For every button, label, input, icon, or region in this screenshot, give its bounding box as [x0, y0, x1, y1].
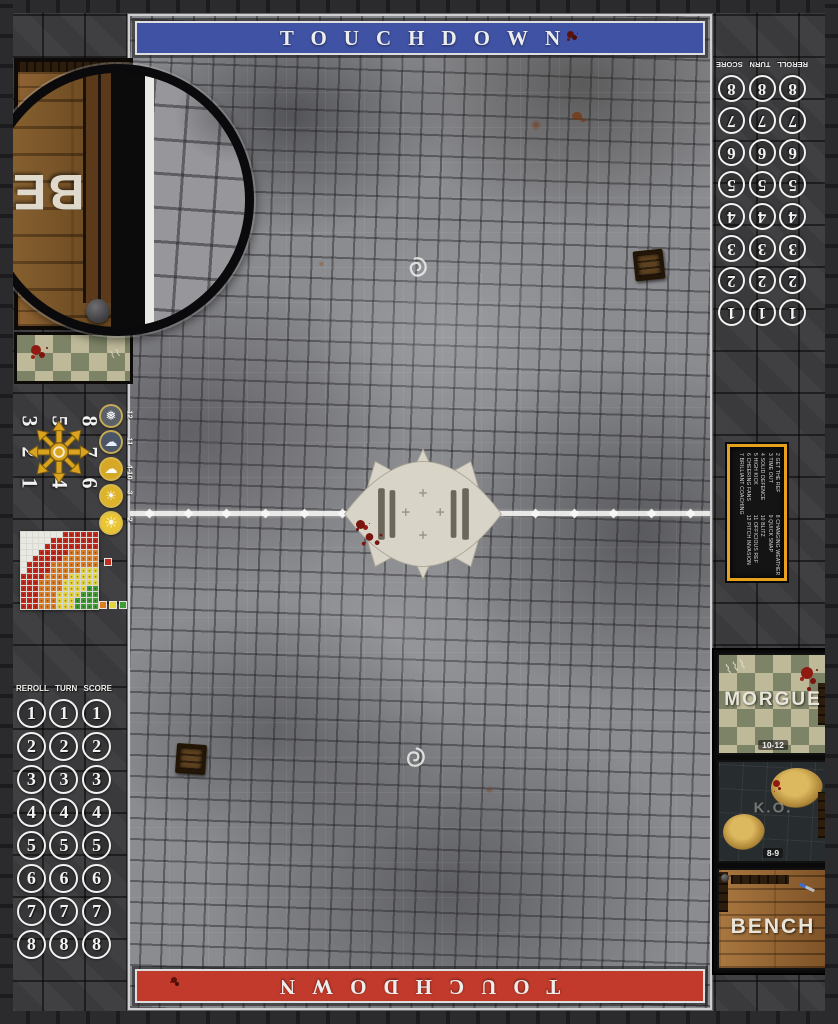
- blizzard-icon: ❅: [99, 404, 123, 428]
- zoom-detail-circle: BE + +: [0, 64, 254, 336]
- range-cell: [93, 538, 98, 543]
- range-cell: [57, 574, 62, 579]
- track-number: 6: [17, 864, 46, 893]
- range-cell: [45, 550, 50, 555]
- range-cell: [87, 604, 92, 609]
- range-cell: [87, 574, 92, 579]
- range-cell: [45, 586, 50, 591]
- midline-diamond: [260, 509, 270, 519]
- range-cell: [81, 592, 86, 597]
- track-number: 2: [718, 268, 745, 295]
- track-number: 8: [49, 930, 78, 959]
- range-cell: [39, 568, 44, 573]
- track-left-reroll-turn-score: REROLLTURNSCORE111222333444555666777888: [15, 684, 113, 961]
- range-cell: [87, 550, 92, 555]
- range-cell: [63, 556, 68, 561]
- midline-diamond: [183, 509, 193, 519]
- straw-pile: [723, 814, 765, 850]
- range-cell: [27, 598, 32, 603]
- range-cell: [69, 550, 74, 555]
- kickoff-entry: 10 BLITZ: [758, 514, 765, 575]
- range-cell: [69, 604, 74, 609]
- ko-dice-range: 8-9: [763, 848, 783, 858]
- dagger: [799, 882, 815, 891]
- magnified-sideline: [145, 73, 154, 336]
- range-cell: [57, 604, 62, 609]
- track-number: 3: [718, 236, 745, 263]
- range-cell: [63, 568, 68, 573]
- range-cell: [81, 568, 86, 573]
- range-cell: [21, 562, 26, 567]
- magnified-plank-stack: [83, 73, 111, 303]
- range-cell: [93, 556, 98, 561]
- range-cell: [21, 556, 26, 561]
- kickoff-entry: 9 QUICK SNAP: [766, 514, 773, 575]
- skull-graffiti: [400, 742, 431, 773]
- frame-left: [0, 0, 13, 1024]
- range-cell: [39, 586, 44, 591]
- range-cell: [51, 568, 56, 573]
- scatter-template: 35827146: [14, 406, 104, 498]
- track-number: 5: [49, 831, 78, 860]
- range-cell: [39, 604, 44, 609]
- blood-splatter: [356, 520, 365, 529]
- range-cell: [87, 532, 92, 537]
- partly-icon: ☁: [99, 457, 123, 481]
- midline-diamond: [531, 509, 541, 519]
- track-number: 2: [749, 268, 776, 295]
- range-cell: [51, 532, 56, 537]
- range-legend-long-bomb: [104, 558, 112, 566]
- range-cell: [57, 556, 62, 561]
- track-number: 6: [718, 140, 745, 167]
- range-cell: [63, 574, 68, 579]
- range-cell: [33, 592, 38, 597]
- blood-splatter: [31, 345, 41, 355]
- range-cell: [27, 574, 32, 579]
- kickoff-entry: 7 BRILLIANT COACHING: [737, 453, 744, 515]
- range-cell: [63, 544, 68, 549]
- range-cell: [69, 544, 74, 549]
- skeleton-bones: ⌇⌇⌇: [723, 656, 749, 679]
- range-cell: [57, 532, 62, 537]
- weather-row: ☀2: [99, 510, 139, 535]
- range-cell: [87, 544, 92, 549]
- track-number: 8: [718, 76, 745, 103]
- range-cell: [39, 562, 44, 567]
- range-cell: [45, 574, 50, 579]
- range-cell: [57, 586, 62, 591]
- range-cell: [69, 538, 74, 543]
- trapdoor: [633, 249, 666, 282]
- range-cell: [75, 586, 80, 591]
- skull-graffiti: [401, 251, 433, 283]
- midline-diamond: [145, 509, 155, 519]
- weather-row: ☁11: [99, 430, 139, 455]
- range-cell: [57, 544, 62, 549]
- range-cell: [51, 538, 56, 543]
- center-spiked-ball-emblem: [337, 446, 509, 582]
- range-cell: [33, 538, 38, 543]
- range-cell: [51, 556, 56, 561]
- weather-row: ☁4-10: [99, 457, 139, 482]
- range-cell: [93, 532, 98, 537]
- range-cell: [63, 562, 68, 567]
- kickoff-entry: 2 GET THE REF: [773, 453, 780, 515]
- range-cell: [93, 568, 98, 573]
- rust-stain: [572, 112, 582, 120]
- blood-bowl-game-mat: TOUCHDOWN TOUCHDOWN: [0, 0, 838, 1024]
- scatter-arrow-star: [28, 421, 90, 483]
- kickoff-entry: 8 CHANGING WEATHER: [773, 514, 780, 575]
- track-number: 1: [17, 699, 46, 728]
- frame-top: [0, 0, 838, 13]
- track-number: 7: [49, 897, 78, 926]
- track-header-word: SCORE: [84, 684, 112, 693]
- track-number: 3: [82, 765, 111, 794]
- track-number: 2: [82, 732, 111, 761]
- range-cell: [57, 550, 62, 555]
- skeleton-bones: ⌇⌇: [109, 347, 124, 361]
- range-cell: [75, 574, 80, 579]
- range-cell: [39, 574, 44, 579]
- range-cell: [51, 580, 56, 585]
- weather-dice-label: 3: [126, 491, 135, 501]
- range-cell: [21, 592, 26, 597]
- range-cell: [21, 544, 26, 549]
- stone-bolt: [721, 874, 729, 882]
- track-number: 4: [718, 204, 745, 231]
- midline-diamond: [647, 509, 657, 519]
- range-legend-swatch: [109, 601, 117, 609]
- trapdoor: [175, 743, 207, 775]
- track-right-reroll-turn-score: REROLLTURNSCORE111222333444555666777888: [716, 60, 808, 329]
- range-cell: [75, 598, 80, 603]
- range-cell: [75, 550, 80, 555]
- dugout-left-morgue-strip: ⌇⌇: [14, 332, 133, 384]
- track-number: 5: [779, 172, 806, 199]
- range-cell: [21, 532, 26, 537]
- range-cell: [57, 592, 62, 597]
- blood-splatter: [171, 977, 177, 983]
- morgue-panel: ⌇⌇⌇ MORGUE 10-12: [717, 653, 829, 755]
- range-cell: [45, 544, 50, 549]
- range-cell: [81, 586, 86, 591]
- range-cell: [21, 568, 26, 573]
- sunny-icon: ☀: [99, 484, 123, 508]
- range-cell: [33, 580, 38, 585]
- range-cell: [57, 598, 62, 603]
- touchdown-banner-top-label: TOUCHDOWN: [263, 26, 577, 51]
- range-cell: [51, 586, 56, 591]
- range-cell: [81, 562, 86, 567]
- track-number: 5: [749, 172, 776, 199]
- range-cell: [33, 598, 38, 603]
- range-cell: [27, 568, 32, 573]
- frame-right: [825, 0, 838, 1024]
- range-cell: [39, 538, 44, 543]
- track-number: 4: [49, 798, 78, 827]
- track-number: 7: [718, 108, 745, 135]
- range-cell: [27, 586, 32, 591]
- range-cell: [39, 580, 44, 585]
- weather-table: ❅12☁11☁4-10☀3☀2: [99, 403, 139, 535]
- track-number: 2: [779, 268, 806, 295]
- track-number: 4: [749, 204, 776, 231]
- range-cell: [27, 580, 32, 585]
- track-number: 8: [749, 76, 776, 103]
- range-legend-bands: [99, 601, 127, 609]
- touchdown-banner-top: TOUCHDOWN: [135, 21, 705, 55]
- range-cell: [33, 550, 38, 555]
- magnified-round-stone: [86, 299, 110, 323]
- range-cell: [45, 598, 50, 603]
- weather-row: ❅12: [99, 403, 139, 428]
- kickoff-entry: 5 HIGH KICK: [751, 453, 758, 515]
- range-cell: [81, 550, 86, 555]
- range-cell: [93, 604, 98, 609]
- track-number: 7: [82, 897, 111, 926]
- range-cell: [27, 544, 32, 549]
- range-cell: [33, 586, 38, 591]
- range-cell: [21, 586, 26, 591]
- kickoff-entry: 4 SOLID DEFENCE: [758, 453, 765, 515]
- range-cell: [63, 598, 68, 603]
- track-number: 3: [49, 765, 78, 794]
- track-number: 6: [82, 864, 111, 893]
- range-cell: [27, 532, 32, 537]
- track-header-word: REROLL: [16, 684, 49, 693]
- range-cell: [81, 580, 86, 585]
- track-number: 7: [779, 108, 806, 135]
- bench-label: BENCH: [731, 915, 816, 939]
- range-cell: [39, 592, 44, 597]
- midline-diamond: [686, 509, 696, 519]
- range-cell: [75, 592, 80, 597]
- range-cell: [39, 532, 44, 537]
- range-cell: [93, 586, 98, 591]
- track-header-word: TURN: [750, 60, 771, 69]
- magnified-cobblestones: + +: [154, 73, 254, 336]
- range-cell: [63, 604, 68, 609]
- track-number-grid: 111222333444555666777888: [15, 697, 113, 961]
- range-cell: [27, 538, 32, 543]
- range-cell: [27, 592, 32, 597]
- range-cell: [33, 544, 38, 549]
- track-number: 3: [17, 765, 46, 794]
- range-cell: [51, 574, 56, 579]
- range-cell: [21, 550, 26, 555]
- track-number: 8: [82, 930, 111, 959]
- touchdown-banner-bottom: TOUCHDOWN: [135, 969, 705, 1003]
- range-cell: [87, 556, 92, 561]
- track-header-word: REROLL: [777, 60, 808, 69]
- track-number: 2: [17, 732, 46, 761]
- kickoff-entry: 6 CHEERING FANS: [744, 453, 751, 515]
- track-header: REROLLTURNSCORE: [716, 60, 808, 69]
- range-legend-swatch: [119, 601, 127, 609]
- range-cell: [39, 544, 44, 549]
- morgue-dice-range: 10-12: [758, 740, 788, 750]
- track-number-grid: 111222333444555666777888: [716, 73, 808, 329]
- dugout-right: ⌇⌇⌇ MORGUE 10-12 K.O. 8-9 BENCH: [712, 648, 834, 975]
- range-cell: [27, 550, 32, 555]
- blood-splatter: [801, 667, 813, 679]
- track-number: 6: [749, 140, 776, 167]
- ko-label: K.O.: [754, 799, 793, 816]
- range-cell: [27, 556, 32, 561]
- rain-icon: ☁: [99, 430, 123, 454]
- range-cell: [69, 568, 74, 573]
- track-number: 6: [779, 140, 806, 167]
- range-cell: [93, 550, 98, 555]
- range-cell: [27, 604, 32, 609]
- range-cell: [57, 538, 62, 543]
- range-cell: [39, 556, 44, 561]
- magnified-bench-wood: BE: [0, 73, 111, 336]
- track-number: 1: [718, 300, 745, 327]
- range-cell: [33, 532, 38, 537]
- track-number: 4: [82, 798, 111, 827]
- range-cell: [69, 592, 74, 597]
- morgue-label: MORGUE: [724, 689, 822, 711]
- range-cell: [45, 532, 50, 537]
- range-cell: [87, 568, 92, 573]
- track-number: 6: [49, 864, 78, 893]
- track-header: REROLLTURNSCORE: [15, 684, 113, 693]
- range-cell: [69, 580, 74, 585]
- track-number: 1: [779, 300, 806, 327]
- bench-panel: BENCH: [717, 868, 829, 970]
- track-number: 7: [749, 108, 776, 135]
- range-cell: [93, 574, 98, 579]
- track-header-word: TURN: [55, 684, 77, 693]
- kickoff-entry: 12 PITCH INVASION: [744, 514, 751, 575]
- range-cell: [93, 580, 98, 585]
- range-cell: [45, 568, 50, 573]
- track-number: 3: [779, 236, 806, 263]
- range-cell: [81, 544, 86, 549]
- range-cell: [45, 538, 50, 543]
- wood-beam: [731, 875, 789, 884]
- range-cell: [21, 574, 26, 579]
- weather-dice-label: 12: [126, 411, 135, 421]
- kickoff-entries: 2 GET THE REF3 TIME OUT4 SOLID DEFENCE5 …: [733, 451, 781, 575]
- range-cell: [93, 544, 98, 549]
- range-cell: [51, 598, 56, 603]
- sweltering-icon: ☀: [99, 511, 123, 535]
- range-cell: [75, 556, 80, 561]
- range-legend-swatch: [99, 601, 107, 609]
- range-cell: [87, 586, 92, 591]
- range-cell: [51, 544, 56, 549]
- range-cell: [63, 586, 68, 591]
- track-number: 7: [17, 897, 46, 926]
- range-cell: [69, 532, 74, 537]
- track-number: 2: [49, 732, 78, 761]
- range-cell: [87, 592, 92, 597]
- grid-crosshair: +: [236, 145, 245, 162]
- range-cell: [63, 550, 68, 555]
- track-number: 4: [779, 204, 806, 231]
- range-cell: [51, 562, 56, 567]
- range-cell: [21, 538, 26, 543]
- range-cell: [45, 592, 50, 597]
- track-number: 1: [749, 300, 776, 327]
- track-number: 5: [82, 831, 111, 860]
- weather-dice-label: 2: [126, 518, 135, 528]
- range-cell: [21, 580, 26, 585]
- range-cell: [81, 598, 86, 603]
- range-cell: [45, 556, 50, 561]
- magnified-bench-letters: BE: [11, 163, 84, 221]
- range-cell: [39, 550, 44, 555]
- range-cell: [69, 562, 74, 567]
- magnified-dugout-gap: [111, 73, 145, 336]
- pass-range-ruler: [20, 531, 99, 610]
- range-cell: [33, 556, 38, 561]
- range-cell: [21, 604, 26, 609]
- range-cell: [93, 598, 98, 603]
- range-cell: [69, 598, 74, 603]
- range-cell: [75, 562, 80, 567]
- range-cell: [87, 598, 92, 603]
- track-number: 1: [49, 699, 78, 728]
- range-cell: [75, 544, 80, 549]
- range-cell: [75, 580, 80, 585]
- range-cell: [75, 538, 80, 543]
- track-number: 8: [779, 76, 806, 103]
- range-cell: [21, 598, 26, 603]
- track-number: 8: [17, 930, 46, 959]
- range-cell: [87, 562, 92, 567]
- range-cell: [81, 532, 86, 537]
- range-cell: [51, 592, 56, 597]
- range-cell: [33, 562, 38, 567]
- range-cell: [81, 556, 86, 561]
- kickoff-entry: 3 TIME OUT: [766, 453, 773, 515]
- range-cell: [75, 568, 80, 573]
- track-number: 3: [749, 236, 776, 263]
- midline-diamond: [570, 509, 580, 519]
- midline-diamond: [222, 509, 232, 519]
- track-number: 4: [17, 798, 46, 827]
- range-cell: [33, 574, 38, 579]
- frame-bottom: [0, 1011, 838, 1024]
- range-cell: [33, 604, 38, 609]
- range-cell: [93, 562, 98, 567]
- range-cell: [75, 532, 80, 537]
- track-number: 5: [718, 172, 745, 199]
- range-cell: [69, 556, 74, 561]
- weather-dice-label: 11: [126, 437, 135, 447]
- range-cell: [51, 550, 56, 555]
- range-cell: [81, 574, 86, 579]
- kickoff-event-table: 2 GET THE REF3 TIME OUT4 SOLID DEFENCE5 …: [727, 444, 787, 581]
- touchdown-banner-bottom-label: TOUCHDOWN: [263, 974, 577, 999]
- range-cell: [57, 580, 62, 585]
- range-cell: [63, 532, 68, 537]
- midline-diamond: [299, 509, 309, 519]
- kickoff-entry: 11 OFFICIOUS REF: [751, 514, 758, 575]
- weather-row: ☀3: [99, 483, 139, 508]
- track-header-word: SCORE: [716, 60, 743, 69]
- range-cell: [57, 562, 62, 567]
- range-cell: [69, 574, 74, 579]
- range-cell: [33, 568, 38, 573]
- range-cell: [51, 604, 56, 609]
- range-cell: [45, 580, 50, 585]
